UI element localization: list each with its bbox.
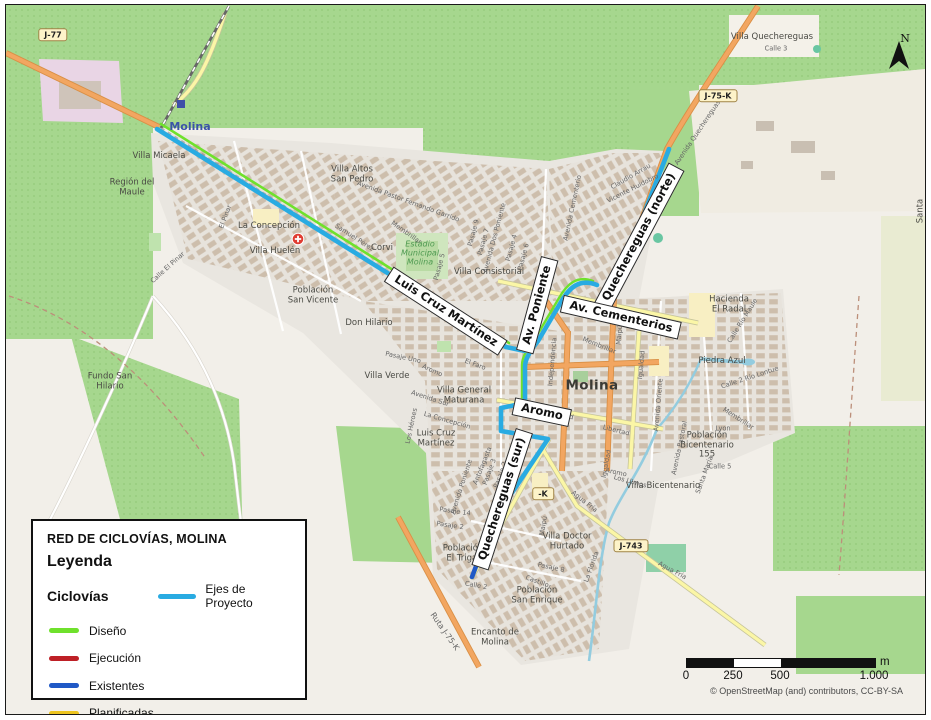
area-label: Don Hilario xyxy=(345,319,392,329)
street-name-label: Avenida Oriente xyxy=(653,378,665,431)
area-label: Villa Altos San Pedro xyxy=(331,165,374,184)
street-name-label: Avenida Cementerio xyxy=(562,174,583,241)
planned-swatch xyxy=(49,711,79,716)
street-name-label: Avenida Dos Poniente xyxy=(482,202,508,273)
street-name-label: Aromo xyxy=(421,363,444,379)
north-label: N xyxy=(900,32,910,45)
area-label: Villa Consistorial xyxy=(454,268,524,278)
execution-swatch xyxy=(49,656,79,661)
street-name-label: La Concepción xyxy=(423,411,471,431)
route-shield: J-77 xyxy=(38,28,67,41)
street-sign-label: Luis Cruz Martínez xyxy=(384,267,508,356)
street-name-label: Calle Río Maule xyxy=(726,298,759,345)
north-arrow: N xyxy=(892,27,918,46)
project-axis-swatch xyxy=(158,594,196,599)
street-name-label: Pasaje 5 xyxy=(433,253,447,281)
street-sign-label: Aromo xyxy=(512,397,573,426)
street-name-label: Avenida Pastor Fernando Garrido xyxy=(356,180,460,224)
street-name-label: Pasaje 3 xyxy=(482,458,498,486)
city-label: Molina xyxy=(565,378,618,393)
street-name-label: Maipú xyxy=(539,516,550,537)
legend-item-label: Existentes xyxy=(89,679,144,693)
area-label: Villa Verde xyxy=(365,372,410,382)
street-sign-label: Quechereguas (norte) xyxy=(594,163,684,311)
design-swatch xyxy=(49,628,79,633)
map-title: RED DE CICLOVÍAS, MOLINA xyxy=(47,532,291,546)
street-name-label: Vicente Huidobro xyxy=(606,173,660,205)
street-name-label: Ruta J-75-K xyxy=(428,611,461,652)
area-label: Población San Vicente xyxy=(288,286,339,305)
area-label: Villa Micaela xyxy=(132,152,185,162)
street-name-label: Agua Fría xyxy=(570,490,599,515)
legend-item: Diseño xyxy=(49,624,291,638)
area-label: Región del Maule xyxy=(110,178,155,197)
street-name-label: Avenida Sur xyxy=(410,389,450,408)
street-name-label: Membrillar xyxy=(721,406,755,431)
street-name-label: El Faro xyxy=(463,358,486,372)
existing-swatch xyxy=(49,683,79,688)
street-name-label: Pasaje 2 xyxy=(436,520,464,531)
area-label: Villa Huelén xyxy=(250,247,301,257)
legend-item: Planificadas xyxy=(49,706,291,715)
street-name-label: Igualdad xyxy=(637,350,647,379)
area-label: Villa Bicentenario xyxy=(626,482,700,492)
street-sign-label: Av. Poniente xyxy=(516,256,558,354)
stadium-label: Estadio Municipal Molina xyxy=(401,241,439,268)
route-shield: J-75-K xyxy=(699,89,738,102)
street-name-label: Los Héroes xyxy=(405,408,420,445)
area-label: Villa Doctor Hurtado xyxy=(542,532,591,551)
area-label: Población San Enrique xyxy=(511,586,562,605)
scale-tick: 250 xyxy=(723,670,742,682)
legend-item-label: Planificadas xyxy=(89,706,154,715)
street-name-label: Los Ulmos xyxy=(613,474,647,490)
route-shield: -K xyxy=(532,487,554,500)
legend-item: Existentes xyxy=(49,679,291,693)
scale-bar-graphic xyxy=(686,658,876,668)
street-name-label: Santa María xyxy=(695,455,715,495)
area-label: Población El Trigal xyxy=(443,544,484,563)
area-label: Hacienda El Radal xyxy=(709,295,749,314)
street-name-label: Libertad xyxy=(546,408,574,422)
street-name-label: Igualdad xyxy=(601,449,613,478)
area-label: Fundo San Hilario xyxy=(88,372,133,391)
route-shield: J-743 xyxy=(614,539,649,552)
map-document: Molina Molina Estadio Municipal Molina V… xyxy=(0,0,931,720)
legend-item-label: Ejes de Proyecto xyxy=(205,582,291,610)
area-label: Luis Cruz Martínez xyxy=(417,429,456,448)
street-name-label: Avenida Poniente xyxy=(450,459,475,516)
street-name-label: Pasaje 14 xyxy=(439,506,471,518)
legend-item-label: Diseño xyxy=(89,624,126,638)
street-sign-label: Av. Cementerios xyxy=(560,295,682,339)
street-name-label: Pasaje 8 xyxy=(537,562,565,575)
area-label: Corvi xyxy=(371,244,393,254)
street-name-label: Lyon xyxy=(715,425,730,432)
street-name-label: Membrillar xyxy=(389,220,422,246)
street-name-label: Calle 2 Río Lontue xyxy=(720,365,779,391)
street-name-label: Pasaje Uno xyxy=(385,351,422,366)
street-name-label: Calle El Pinar xyxy=(149,251,186,285)
street-name-label: Pasaje 2 xyxy=(493,461,509,489)
legend-item-label: Ejecución xyxy=(89,651,141,665)
street-name-label: Claudio Arrau xyxy=(610,163,653,192)
legend-panel: RED DE CICLOVÍAS, MOLINA Leyenda Cicloví… xyxy=(31,519,307,700)
street-name-label: Calle 5 xyxy=(709,463,732,470)
street-name-label: Calle 2 xyxy=(464,580,488,591)
area-label: Población Bicentenario 155 xyxy=(680,432,734,461)
street-name-label: Pasaje 6 xyxy=(517,243,531,271)
legend-item: Ejecución xyxy=(49,651,291,665)
street-name-label: Antofagasta xyxy=(472,446,494,486)
street-name-label: El Pinar xyxy=(218,204,233,230)
legend-heading: Leyenda xyxy=(47,553,291,571)
street-name-label: Avenida Quechereguas xyxy=(674,99,723,166)
station-label: Molina xyxy=(169,121,210,133)
scale-tick: 500 xyxy=(770,670,789,682)
area-label: Piedra Azul xyxy=(698,357,745,367)
street-name-label: La Florida xyxy=(583,551,601,584)
street-name-label: Avenida Pastoral xyxy=(671,420,690,475)
area-label: Santa Adela xyxy=(916,199,926,224)
scale-tick: 1.000 xyxy=(860,670,889,682)
scale-unit: m xyxy=(880,656,890,668)
area-label: Villa General Maturana xyxy=(437,386,491,405)
scale-tick: 0 xyxy=(683,670,689,682)
street-name-label: Agua Fría xyxy=(657,560,688,581)
street-name-label: Libertad xyxy=(602,424,630,438)
street-name-label: Membrillar xyxy=(581,336,617,356)
street-name-label: Calle 3 xyxy=(765,45,788,52)
street-name-label: Pasaje 4 xyxy=(505,234,519,262)
map-frame: Molina Molina Estadio Municipal Molina V… xyxy=(5,4,926,715)
street-name-label: Samuel Pérez xyxy=(333,223,375,254)
street-name-label: Pasaje 7 xyxy=(477,228,491,256)
area-label: Encanto de Molina xyxy=(471,628,519,647)
street-name-label: Castillo xyxy=(524,574,549,589)
area-label: Villa Quechereguas xyxy=(731,33,813,43)
street-sign-label: Quechereguas (sur) xyxy=(471,428,532,571)
street-name-label: Independencia xyxy=(547,337,559,386)
attribution-text: © OpenStreetMap (and) contributors, CC-B… xyxy=(710,686,903,696)
street-name-label: Pasaje 9 xyxy=(467,219,481,247)
area-label: La Concepción xyxy=(238,222,300,232)
legend-group-label: Ciclovías xyxy=(47,588,158,604)
street-name-label: Aromo xyxy=(605,467,628,479)
street-name-label: Maipú xyxy=(615,325,624,346)
